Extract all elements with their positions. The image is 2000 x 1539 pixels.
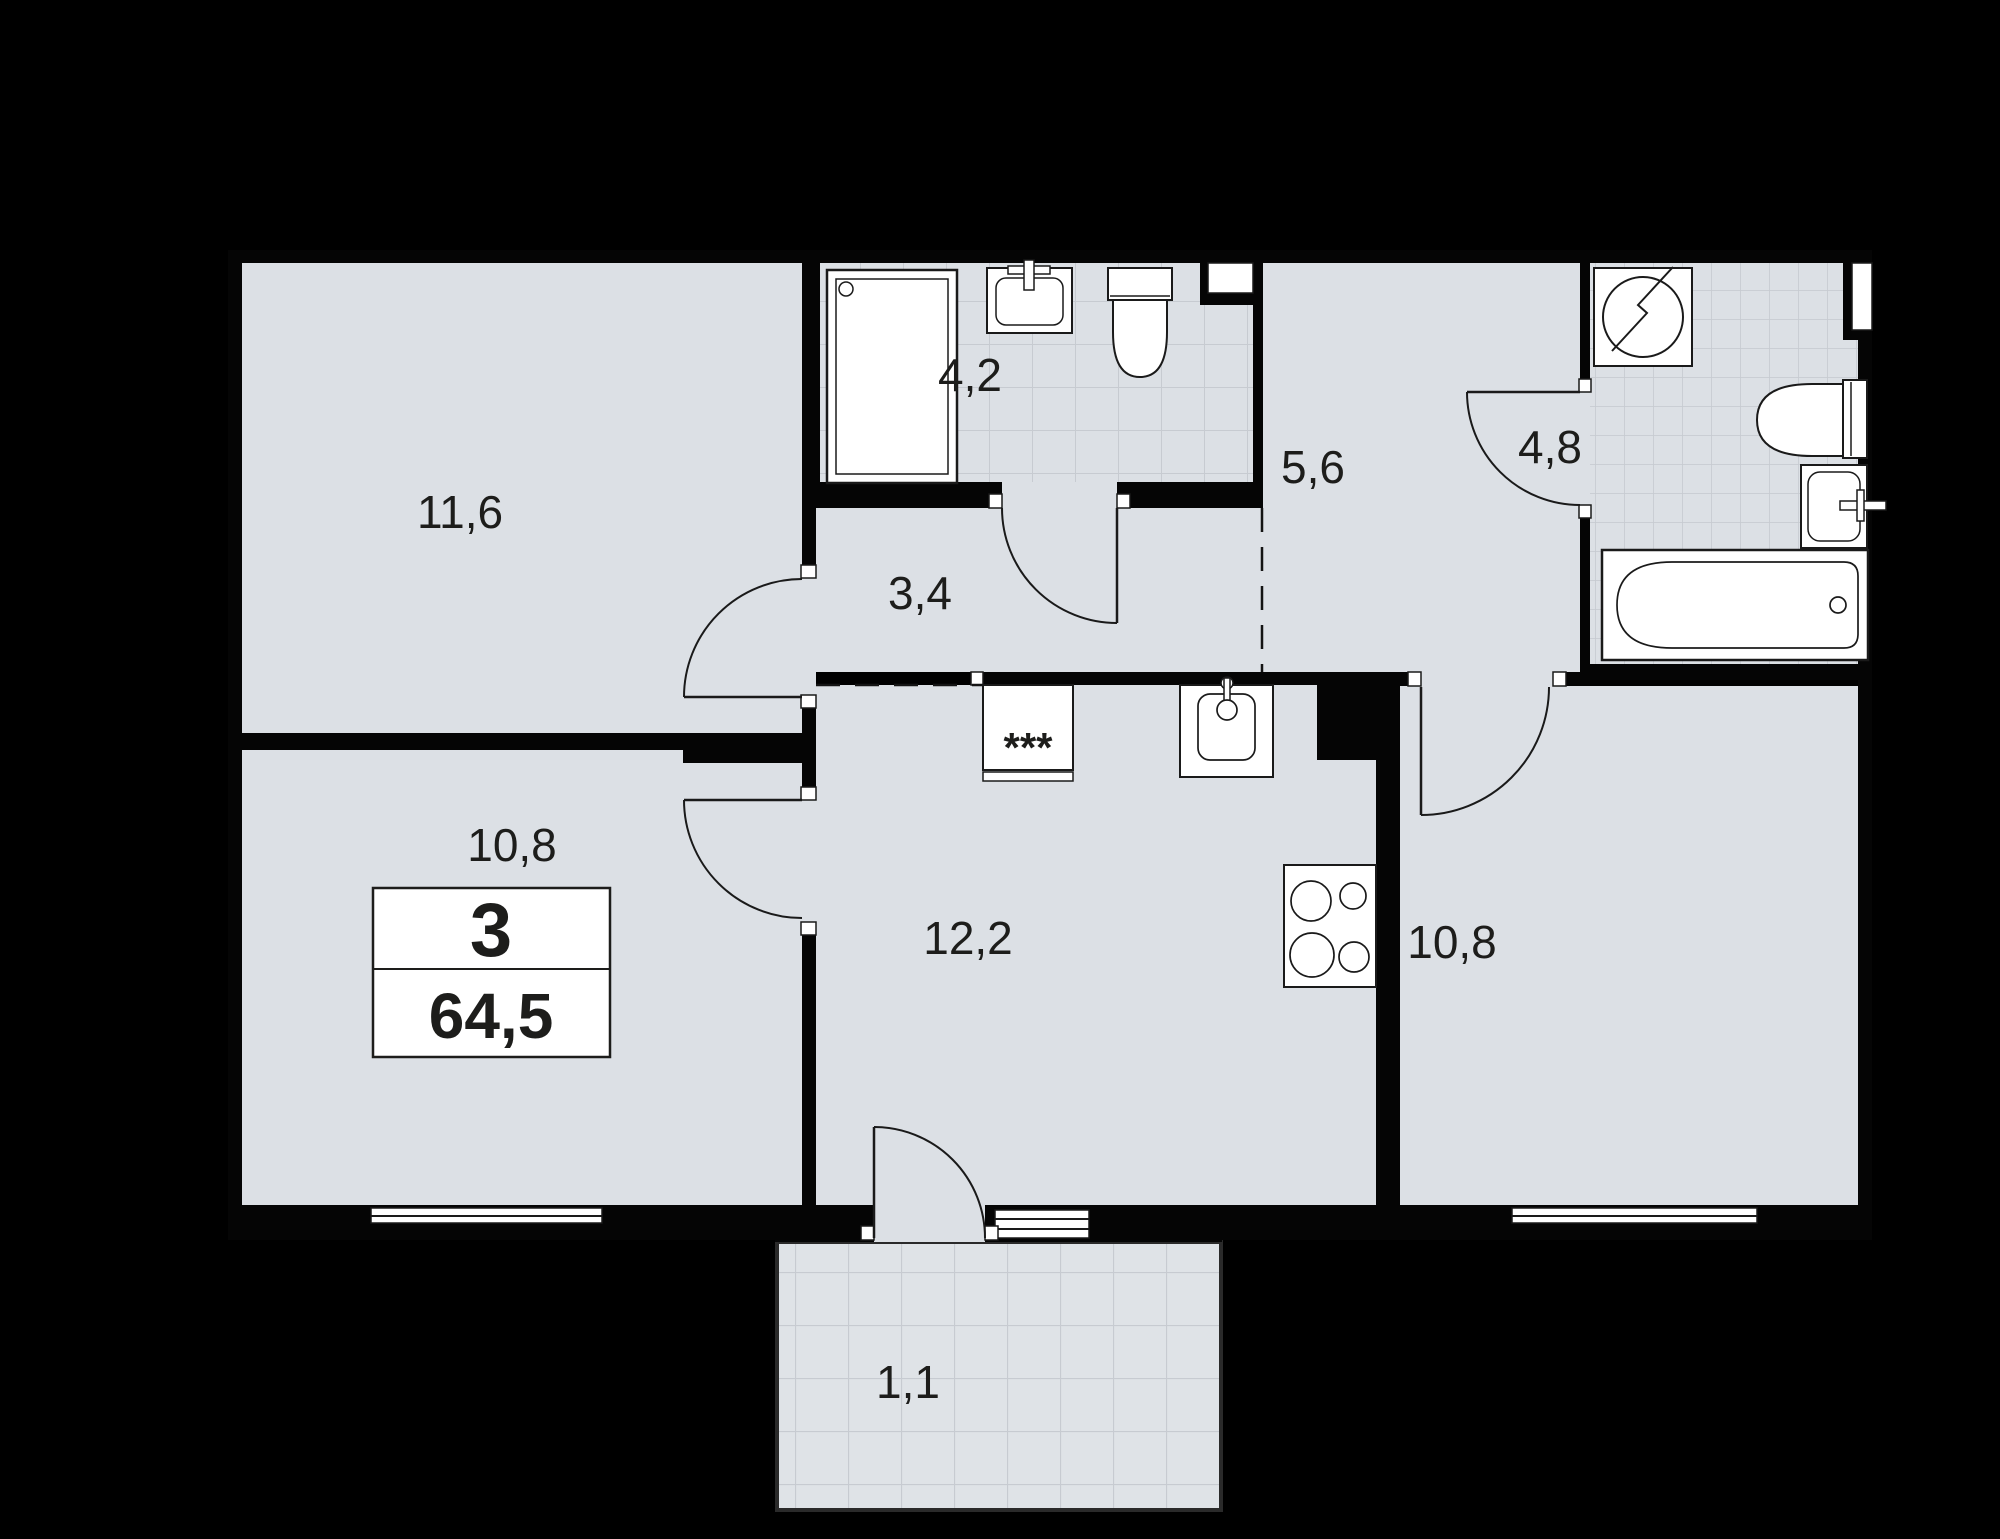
- label-balcony: 1,1: [876, 1356, 940, 1408]
- ventilation-shaft-large: [1852, 263, 1872, 330]
- label-bathroom-small: 4,2: [938, 349, 1002, 401]
- toilet-icon: [1108, 268, 1172, 377]
- sink-icon: [1801, 465, 1886, 548]
- wall-exterior-left: [228, 263, 242, 1240]
- wall-pier-center: [683, 733, 816, 763]
- balcony-door-gap: [874, 1205, 985, 1242]
- label-bathroom-large: 4,8: [1518, 421, 1582, 473]
- wall-exterior-top: [228, 250, 1872, 263]
- balcony-deck: [777, 1242, 1221, 1510]
- wall-kitchen-top: [983, 672, 1317, 685]
- label-bedroom-right: 10,8: [1407, 916, 1497, 968]
- wall-corridor-bathroom-small: [1253, 263, 1263, 508]
- floor-plan: *** 11,6 4,2 3,4 5,6 4,8 10,8 12,2 10,8 …: [0, 0, 2000, 1539]
- jamb: [1117, 494, 1130, 508]
- wall-bathroom-large-left-lower: [1580, 505, 1590, 664]
- jamb: [801, 565, 816, 578]
- label-bedroom-left: 10,8: [467, 819, 557, 871]
- ventilation-shaft-small: [1208, 263, 1253, 293]
- fridge-icon: ***: [983, 685, 1073, 781]
- jamb: [801, 922, 816, 935]
- jamb: [971, 672, 983, 685]
- wall-kitchen-bedroomright: [1376, 760, 1400, 1205]
- toilet-icon: [1757, 380, 1867, 458]
- label-hallway: 3,4: [888, 567, 952, 619]
- floor-living-room: [242, 263, 802, 733]
- opening-bathroom-small-door: [1002, 482, 1117, 508]
- jamb: [989, 494, 1002, 508]
- jamb: [861, 1226, 874, 1240]
- jamb: [1579, 379, 1591, 392]
- opening-bedroomright-door: [1421, 672, 1553, 686]
- bathtub-icon: [1602, 550, 1868, 660]
- wall-living-bedroomleft: [242, 733, 683, 750]
- balcony-structure: [775, 1205, 1222, 1510]
- info-box-rooms-count: 3: [470, 888, 512, 973]
- stove-icon: [1284, 865, 1376, 987]
- wall-bathroom-large-bottom: [1580, 664, 1872, 680]
- opening-living-door: [802, 578, 816, 695]
- opening-bedroomleft-door: [802, 800, 816, 922]
- wall-bathroom-large-left-upper: [1580, 263, 1590, 392]
- jamb: [985, 1226, 998, 1240]
- wall-bedroomleft-kitchen: [802, 922, 816, 1205]
- wall-bathroom-small-bottom-left: [816, 482, 1002, 508]
- wall-shaft-kitchen-block: [1317, 672, 1400, 760]
- floor-plan-canvas: *** 11,6 4,2 3,4 5,6 4,8 10,8 12,2 10,8 …: [0, 0, 2000, 1539]
- label-living-room: 11,6: [417, 486, 503, 538]
- info-box-total-area: 64,5: [429, 980, 554, 1052]
- info-box: 3 64,5: [373, 888, 610, 1057]
- jamb: [1579, 505, 1591, 518]
- jamb: [1408, 672, 1421, 686]
- wall-bathroom-small-bottom-right: [1117, 482, 1263, 508]
- jamb: [801, 787, 816, 800]
- label-kitchen: 12,2: [923, 912, 1013, 964]
- fridge-symbol: ***: [1003, 724, 1053, 771]
- balcony-window: [995, 1210, 1089, 1238]
- jamb: [801, 695, 816, 708]
- wall-shaft-large-left: [1843, 263, 1852, 340]
- kitchen-sink-icon: [1180, 677, 1273, 777]
- wall-living-bathroom: [802, 263, 820, 508]
- washing-machine-icon: [1594, 267, 1692, 366]
- floor-hallway: [816, 508, 1263, 672]
- label-corridor: 5,6: [1281, 441, 1345, 493]
- wall-shaft-large-bottom: [1843, 330, 1872, 340]
- jamb: [1553, 672, 1566, 686]
- sink-icon: [987, 260, 1072, 333]
